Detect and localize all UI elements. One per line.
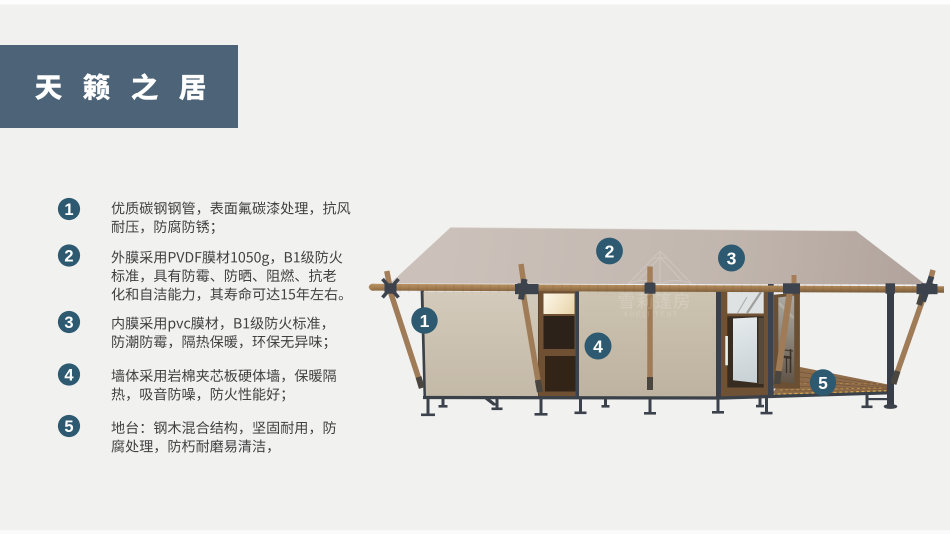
svg-text:1: 1 (64, 201, 73, 219)
svg-text:3: 3 (727, 249, 737, 269)
svg-text:5: 5 (64, 418, 73, 436)
svg-text:2: 2 (64, 248, 73, 266)
svg-text:4: 4 (593, 337, 603, 357)
svg-text:3: 3 (64, 314, 73, 332)
svg-text:4: 4 (64, 367, 74, 385)
svg-text:5: 5 (818, 373, 828, 393)
svg-text:2: 2 (605, 242, 615, 262)
svg-text:XUELI TENT: XUELI TENT (623, 312, 678, 319)
svg-text:1: 1 (420, 311, 430, 331)
